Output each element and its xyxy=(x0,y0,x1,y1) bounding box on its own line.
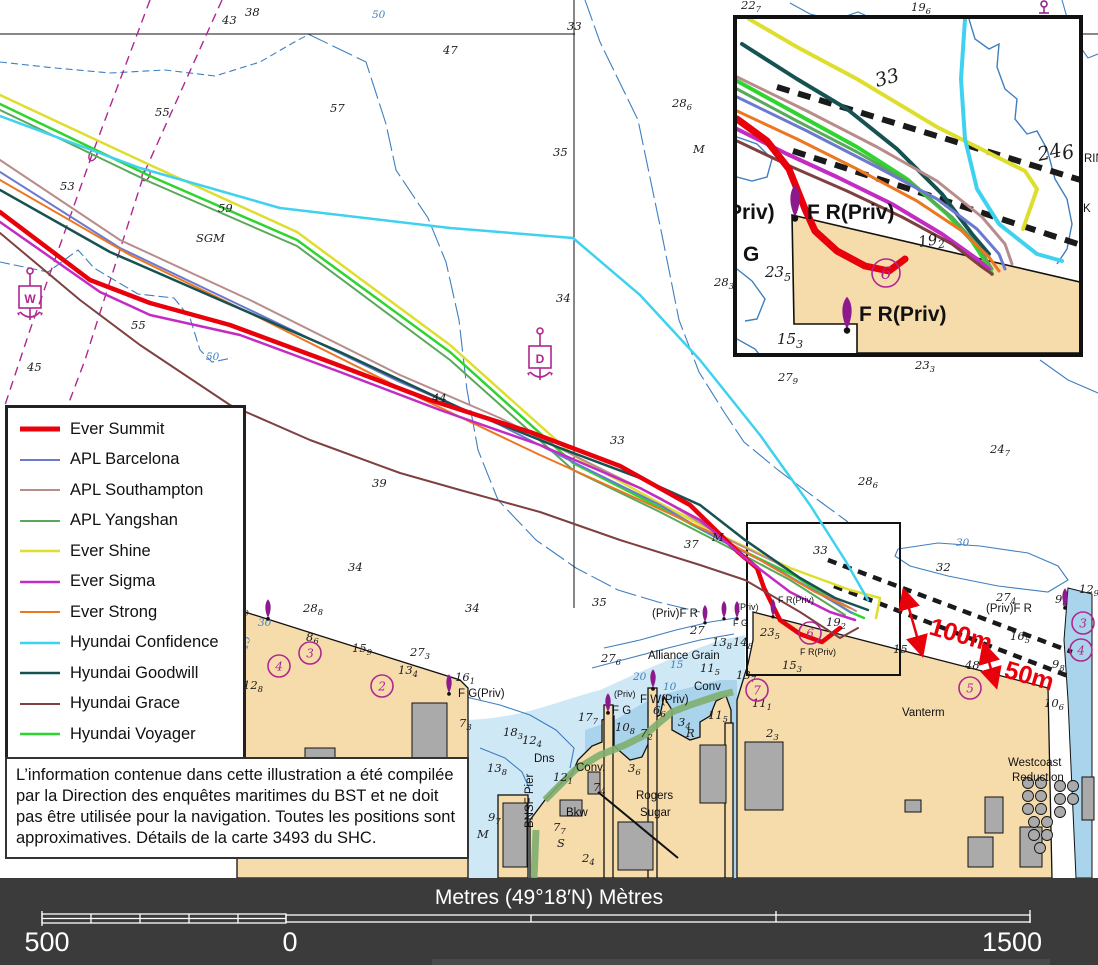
sounding: 286 xyxy=(857,474,879,491)
place-label: M xyxy=(476,827,490,841)
sounding: 286 xyxy=(671,96,693,113)
svg-text:6: 6 xyxy=(881,264,892,284)
contour-line xyxy=(1040,360,1098,393)
sounding: 55 xyxy=(155,105,170,119)
legend-swatch xyxy=(18,484,62,496)
place-label: F R(Priv) xyxy=(800,647,836,657)
place-label: Rogers xyxy=(636,790,673,802)
inset-contour xyxy=(737,339,767,357)
legend-item: Hyundai Voyager xyxy=(18,719,243,750)
tank xyxy=(1036,791,1047,802)
contour-line xyxy=(895,543,1068,592)
svg-text:3: 3 xyxy=(306,647,314,661)
legend-swatch xyxy=(18,454,62,466)
legend-swatch xyxy=(18,637,62,649)
svg-text:4: 4 xyxy=(274,660,283,674)
contour-line xyxy=(0,250,232,362)
sounding: 53 xyxy=(60,179,75,193)
legend-item: Ever Summit xyxy=(18,414,243,445)
inset-light-label: F R(Priv) xyxy=(859,303,947,326)
sounding: 33 xyxy=(567,19,582,33)
anchorage-icon: W xyxy=(17,268,43,320)
place-label: Conv xyxy=(694,681,721,693)
contour-label: 30 xyxy=(956,537,970,549)
place-label: SGM xyxy=(196,231,226,245)
svg-text:3: 3 xyxy=(1079,617,1087,631)
place-label: Reduction xyxy=(1012,772,1064,784)
tank xyxy=(1068,781,1079,792)
sounding: 27 xyxy=(689,623,705,637)
legend-swatch xyxy=(18,606,62,618)
sounding: 273 xyxy=(409,645,430,662)
sounding: 34 xyxy=(556,291,571,305)
secondary-scale-hint xyxy=(432,959,1050,965)
sounding: 34 xyxy=(465,601,480,615)
scalebar-label-500: 500 xyxy=(24,927,69,957)
svg-text:4: 4 xyxy=(1076,644,1085,658)
place-label: S xyxy=(557,836,565,850)
place-label: Alliance Grain xyxy=(648,650,720,662)
legend-item: Hyundai Goodwill xyxy=(18,658,243,689)
place-label: M xyxy=(692,142,706,156)
legend-item: APL Southampton xyxy=(18,475,243,506)
legend-item: Hyundai Grace xyxy=(18,689,243,720)
legend-label: Hyundai Grace xyxy=(70,694,180,713)
legend-item: Ever Sigma xyxy=(18,567,243,598)
svg-text:W: W xyxy=(24,292,36,306)
place-label: Vanterm xyxy=(902,707,945,719)
place-label: (Priv) xyxy=(737,602,759,612)
place-label: F W(Priv) xyxy=(640,694,689,706)
place-label: (Priv)F R xyxy=(652,608,698,620)
anchorage-icon: D xyxy=(527,328,553,380)
place-label: M xyxy=(711,530,725,544)
legend-label: APL Yangshan xyxy=(70,511,178,530)
place-label: K xyxy=(1083,203,1091,215)
inset-sounding: 235 xyxy=(764,263,791,284)
legend-swatch xyxy=(18,423,62,435)
legend-label: Ever Shine xyxy=(70,542,151,561)
sounding: 47 xyxy=(442,43,458,57)
place-label: Westcoast xyxy=(1008,757,1062,769)
contour-label: 15 xyxy=(670,659,684,671)
sounding: 283 xyxy=(713,275,734,292)
sounding: 15 xyxy=(893,642,908,656)
disclaimer-box: L’information contenue dans cette illust… xyxy=(5,757,469,859)
inset-contour xyxy=(737,269,765,321)
dolphin-icon xyxy=(1039,1,1049,13)
legend-swatch xyxy=(18,545,62,557)
contour-line xyxy=(0,34,310,76)
sounding: 288 xyxy=(302,601,324,618)
legend-label: Ever Strong xyxy=(70,603,157,622)
legend-swatch xyxy=(18,515,62,527)
contour-label: 50 xyxy=(206,351,220,363)
light-buoy-icon xyxy=(722,601,727,621)
legend-label: Ever Sigma xyxy=(70,572,155,591)
tank xyxy=(1068,794,1079,805)
place-label: F R(Priv) xyxy=(778,595,814,605)
place-label: F G xyxy=(733,618,748,628)
sounding: 37 xyxy=(684,537,699,551)
sounding: 33 xyxy=(610,433,625,447)
sounding: 55 xyxy=(131,318,146,332)
sounding: 45 xyxy=(26,360,42,374)
sounding: 35 xyxy=(592,595,607,609)
legend-swatch xyxy=(18,576,62,588)
legend-swatch xyxy=(18,728,62,740)
scalebar-title: Metres (49°18′N) Mètres xyxy=(435,886,663,909)
sounding: 165 xyxy=(1010,629,1030,646)
tank xyxy=(1023,791,1034,802)
cable-line xyxy=(5,0,150,405)
inset-light-label: G xyxy=(743,243,759,266)
inset-sounding: 153 xyxy=(777,330,803,351)
sounding: 33 xyxy=(813,543,828,557)
svg-text:7: 7 xyxy=(753,684,761,698)
place-label: R xyxy=(685,726,695,740)
sounding: 38 xyxy=(245,5,260,19)
legend-label: Hyundai Goodwill xyxy=(70,664,198,683)
sounding: 233 xyxy=(914,358,935,375)
tank xyxy=(1023,804,1034,815)
place-label: Bkw xyxy=(566,807,588,819)
inset-sounding: 33 xyxy=(873,64,902,92)
sounding: 59 xyxy=(218,201,233,215)
inset-light-label: F R(Priv) xyxy=(807,201,895,224)
scalebar-bar xyxy=(42,910,1030,926)
place-label: (Priv)F R xyxy=(986,603,1032,615)
inset-detail-map: 235 153 192 33 246 F R(Priv)F R(Priv)(Pr… xyxy=(733,15,1083,357)
sounding: 32 xyxy=(936,560,951,574)
sounding: 247 xyxy=(989,442,1011,459)
scalebar-footer: Metres (49°18′N) Mètres 500 0 1500 xyxy=(0,878,1098,965)
legend-item: Ever Shine xyxy=(18,536,243,567)
sounding: 35 xyxy=(553,145,568,159)
sounding: 279 xyxy=(777,370,799,387)
legend-label: Hyundai Confidence xyxy=(70,633,219,652)
scalebar-label-1500: 1500 xyxy=(982,927,1042,957)
contour-label: 20 xyxy=(632,671,647,683)
inset-light-label: (Priv) xyxy=(733,201,775,224)
place-label: F G(Priv) xyxy=(458,688,505,700)
inset-sounding: 246 xyxy=(1034,137,1076,170)
tank xyxy=(1042,830,1053,841)
tank xyxy=(1055,794,1066,805)
scalebar-graphic: Metres (49°18′N) Mètres 500 0 1500 xyxy=(0,878,1098,965)
sounding: 39 xyxy=(372,476,387,490)
light-buoy-icon xyxy=(703,605,708,625)
legend-item: APL Barcelona xyxy=(18,445,243,476)
sounding: 48 xyxy=(964,658,980,672)
legend-label: Ever Summit xyxy=(70,420,164,439)
tank xyxy=(1029,817,1040,828)
legend-item: Hyundai Confidence xyxy=(18,628,243,659)
place-label: F G xyxy=(612,705,631,717)
scalebar-label-0: 0 xyxy=(282,927,297,957)
place-label: Dns xyxy=(534,753,555,765)
nautical-chart-illustration: 100m50m 38 43 33 47 57 35 286 55 53 xyxy=(0,0,1098,965)
svg-text:6: 6 xyxy=(806,627,814,641)
place-label: RIN xyxy=(1084,153,1098,165)
sounding: 44 xyxy=(431,391,447,405)
sounding: 227 xyxy=(740,0,762,15)
track-legend: Ever Summit APL Barcelona APL Southampto… xyxy=(5,405,246,763)
place-label: Conv. xyxy=(576,762,605,774)
legend-swatch xyxy=(18,667,62,679)
contour-label: 50 xyxy=(372,9,386,21)
sounding: 57 xyxy=(330,101,345,115)
contour-line xyxy=(308,34,700,612)
disclaimer-text: L’information contenue dans cette illust… xyxy=(16,766,455,847)
place-label: Sugar xyxy=(640,807,671,819)
tank xyxy=(1055,807,1066,818)
svg-text:5: 5 xyxy=(966,682,974,696)
tank xyxy=(1035,843,1046,854)
legend-item: Ever Strong xyxy=(18,597,243,628)
distance-arrow xyxy=(906,598,920,647)
sounding: 43 xyxy=(221,13,237,27)
place-label: BNSF Pier xyxy=(524,774,536,828)
place-label: (Priv) xyxy=(614,689,636,699)
legend-label: APL Barcelona xyxy=(70,450,179,469)
tank xyxy=(1036,804,1047,815)
svg-text:D: D xyxy=(536,352,545,366)
svg-text:2: 2 xyxy=(377,680,386,694)
contour-label: 10 xyxy=(663,681,677,693)
legend-item: APL Yangshan xyxy=(18,506,243,537)
legend-swatch xyxy=(18,698,62,710)
tank xyxy=(1042,817,1053,828)
inset-tracks xyxy=(737,19,1062,274)
legend-label: Hyundai Voyager xyxy=(70,725,196,744)
tank xyxy=(1029,830,1040,841)
sounding: 34 xyxy=(348,560,363,574)
legend-label: APL Southampton xyxy=(70,481,203,500)
